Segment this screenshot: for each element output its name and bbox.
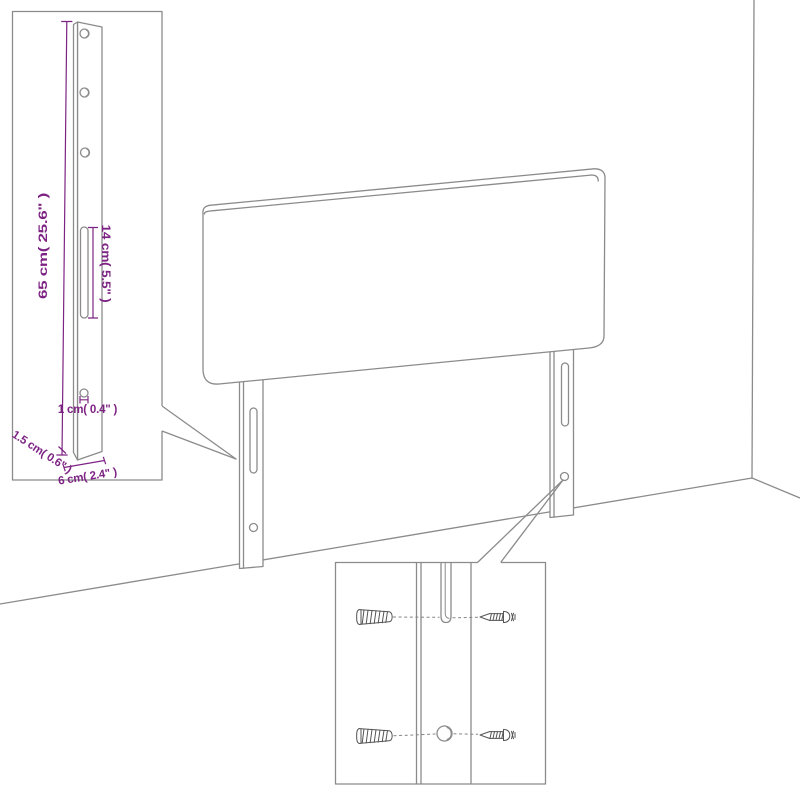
panel-outline <box>203 169 605 384</box>
assembly-diagram: 65 cm( 25.6" ) 14 cm( 5.5" ) 1 cm( 0.4" … <box>0 0 800 800</box>
left-mounting-leg <box>240 380 264 569</box>
dimension-hole-label: 1 cm( 0.4" ) <box>58 404 118 416</box>
dimension-height-label: 65 cm( 25.6" ) <box>38 192 50 299</box>
leg-detail-inset: 65 cm( 25.6" ) 14 cm( 5.5" ) 1 cm( 0.4" … <box>10 12 162 488</box>
post-front-face <box>78 22 103 460</box>
callout-line-top-left-a <box>162 406 236 459</box>
mounting-detail-inset <box>336 563 546 785</box>
headboard-panel <box>203 169 605 384</box>
callout-lines <box>162 406 563 562</box>
wall-corner-line <box>752 0 754 478</box>
post-side-face <box>74 22 78 460</box>
floor-line-right <box>752 478 800 498</box>
callout-line-bottom-a <box>478 480 563 562</box>
dimension-slot-label: 14 cm( 5.5" ) <box>99 225 111 303</box>
callout-line-top-left-b <box>162 431 236 459</box>
callout-line-bottom-b <box>501 480 563 562</box>
